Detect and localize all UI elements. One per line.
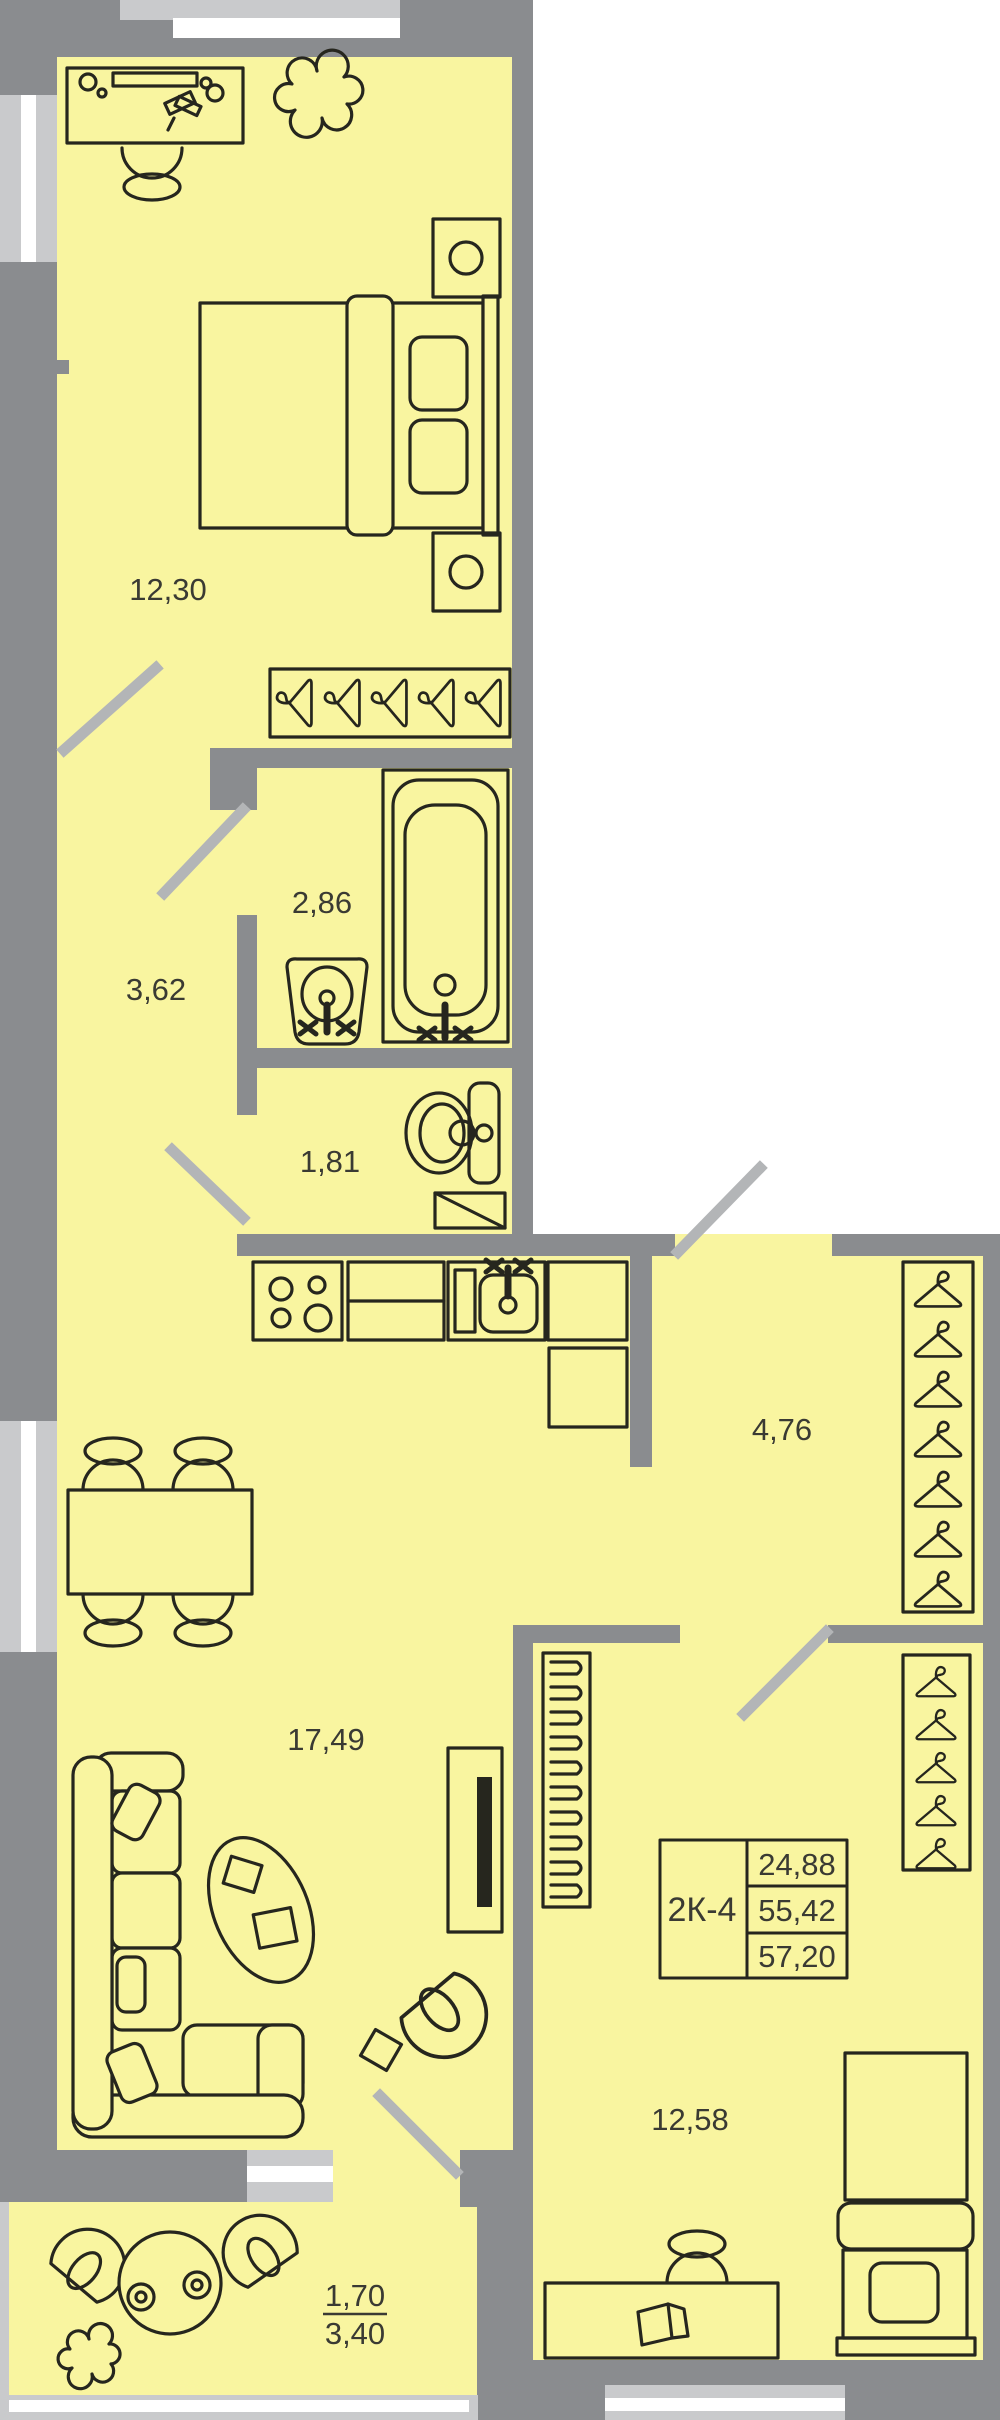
bedroom2-window: [605, 2398, 845, 2411]
dining-table: [68, 1490, 252, 1594]
bed: [200, 296, 498, 535]
living-window: [21, 1421, 36, 1652]
balcony-area-label-bottom: 3,40: [325, 2316, 385, 2351]
desk2: [545, 2283, 778, 2358]
bedroom1-area-label: 12,30: [129, 572, 207, 607]
unit-area-3: 57,20: [758, 1939, 836, 1974]
hallway-area-label: 3,62: [126, 972, 186, 1007]
tv-screen: [477, 1777, 492, 1907]
floor-plan-svg: 12,30 2,86 3,62 1,81 4,76 17,49 12,58 1,…: [0, 0, 1000, 2420]
bedroom2-area-label: 12,58: [651, 2102, 729, 2137]
top-window: [173, 18, 400, 38]
floor-plan: 12,30 2,86 3,62 1,81 4,76 17,49 12,58 1,…: [0, 0, 1000, 2420]
toilet-floor: [257, 1068, 513, 1234]
bedroom1-window: [21, 95, 36, 262]
bathroom-area-label: 2,86: [292, 885, 352, 920]
unit-area-2: 55,42: [758, 1893, 836, 1928]
living-area-label: 17,49: [287, 1722, 365, 1757]
toilet-area-label: 1,81: [300, 1144, 360, 1179]
unit-id: 2К-4: [668, 1891, 737, 1929]
corridor-area-label: 4,76: [752, 1412, 812, 1447]
balcony-table: [119, 2232, 221, 2334]
top-window-sill: [120, 0, 400, 20]
balcony-area-label-top: 1,70: [325, 2278, 385, 2313]
unit-area-1: 24,88: [758, 1847, 836, 1882]
balcony-side-glazing: [0, 2202, 9, 2395]
